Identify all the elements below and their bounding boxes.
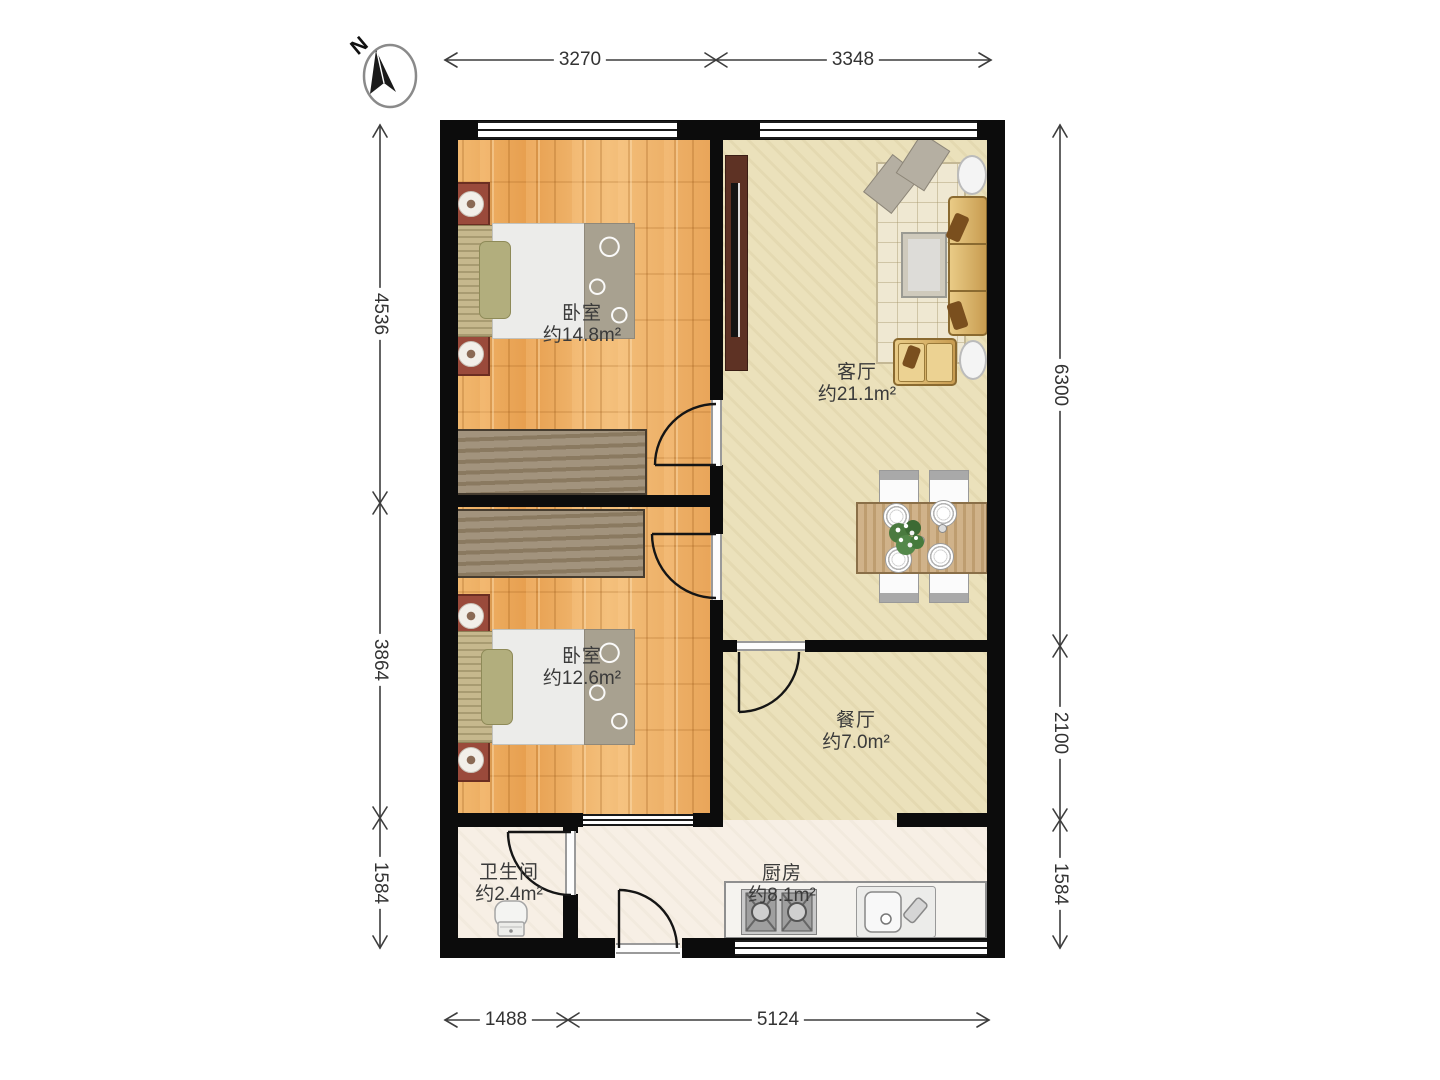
room-name: 客厅 [837, 362, 877, 383]
dim-label-left-3: 1584 [369, 857, 391, 909]
room-name: 卧室 [562, 303, 602, 324]
dim-label-top-2: 3348 [827, 49, 879, 71]
room-area: 约7.0m² [822, 732, 890, 754]
dim-label-right-3: 1584 [1049, 858, 1071, 910]
room-area: 约21.1m² [818, 384, 896, 406]
room-label-bedroom1: 卧室 约14.8m² [543, 303, 621, 347]
dim-label-right-2: 2100 [1049, 707, 1071, 759]
dim-label-right-1: 6300 [1049, 359, 1071, 411]
dim-label-top-1: 3270 [554, 49, 606, 71]
room-name: 卧室 [562, 646, 602, 667]
room-label-bathroom: 卫生间 约2.4m² [475, 862, 543, 906]
dim-label-bottom-2: 5124 [752, 1009, 804, 1031]
compass: N [346, 32, 416, 107]
annotation-layer: N [0, 0, 1440, 1080]
room-name: 卫生间 [479, 862, 539, 883]
room-name: 厨房 [762, 863, 802, 884]
room-label-living: 客厅 约21.1m² [818, 362, 896, 406]
room-name: 餐厅 [836, 710, 876, 731]
room-label-bedroom2: 卧室 约12.6m² [543, 646, 621, 690]
dim-label-left-2: 3864 [369, 634, 391, 686]
room-area: 约12.6m² [543, 668, 621, 690]
room-area: 约2.4m² [475, 884, 543, 906]
floor-plan: N 3270 3348 4536 3864 1584 6300 2100 158… [0, 0, 1440, 1080]
north-label: N [346, 32, 372, 59]
dim-label-bottom-1: 1488 [480, 1009, 532, 1031]
room-area: 约8.1m² [748, 885, 816, 907]
room-area: 约14.8m² [543, 325, 621, 347]
room-label-dining: 餐厅 约7.0m² [822, 710, 890, 754]
dim-label-left-1: 4536 [369, 288, 391, 340]
room-label-kitchen: 厨房 约8.1m² [748, 863, 816, 907]
